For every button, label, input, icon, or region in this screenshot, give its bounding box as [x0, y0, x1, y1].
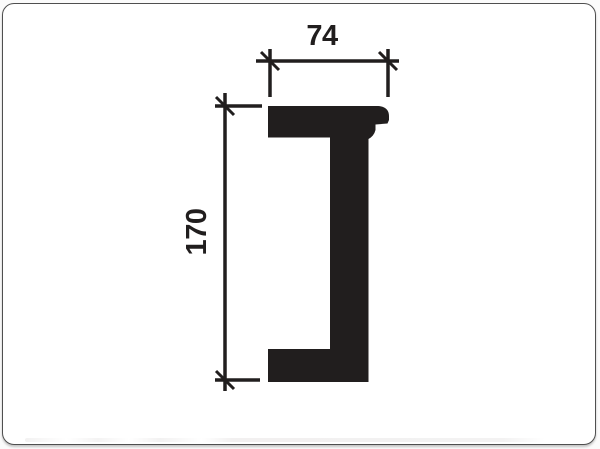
scan-artifact [25, 438, 545, 442]
technical-drawing: 74 170 [0, 0, 600, 449]
width-dimension-label: 74 [306, 20, 338, 52]
profile-shape [268, 106, 389, 382]
height-dimension-label: 170 [181, 209, 213, 256]
height-dimension: 170 [181, 93, 262, 391]
width-dimension: 74 [256, 20, 399, 97]
